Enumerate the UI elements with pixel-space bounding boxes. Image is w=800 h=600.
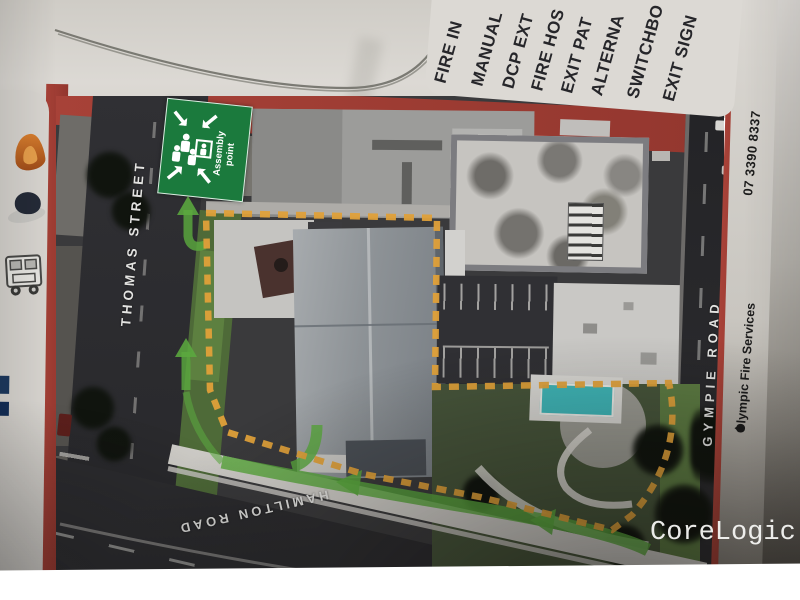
property-boundary-dashed (206, 213, 672, 530)
walkway-path (561, 430, 632, 505)
evacuation-diagram-photo: THOMAS STREET HAMILTON ROAD GYMPIE ROAD … (0, 0, 800, 600)
watermark: CoreLogic (650, 518, 796, 548)
photo-bottom-edge (0, 563, 800, 600)
map-overlay (0, 0, 800, 575)
